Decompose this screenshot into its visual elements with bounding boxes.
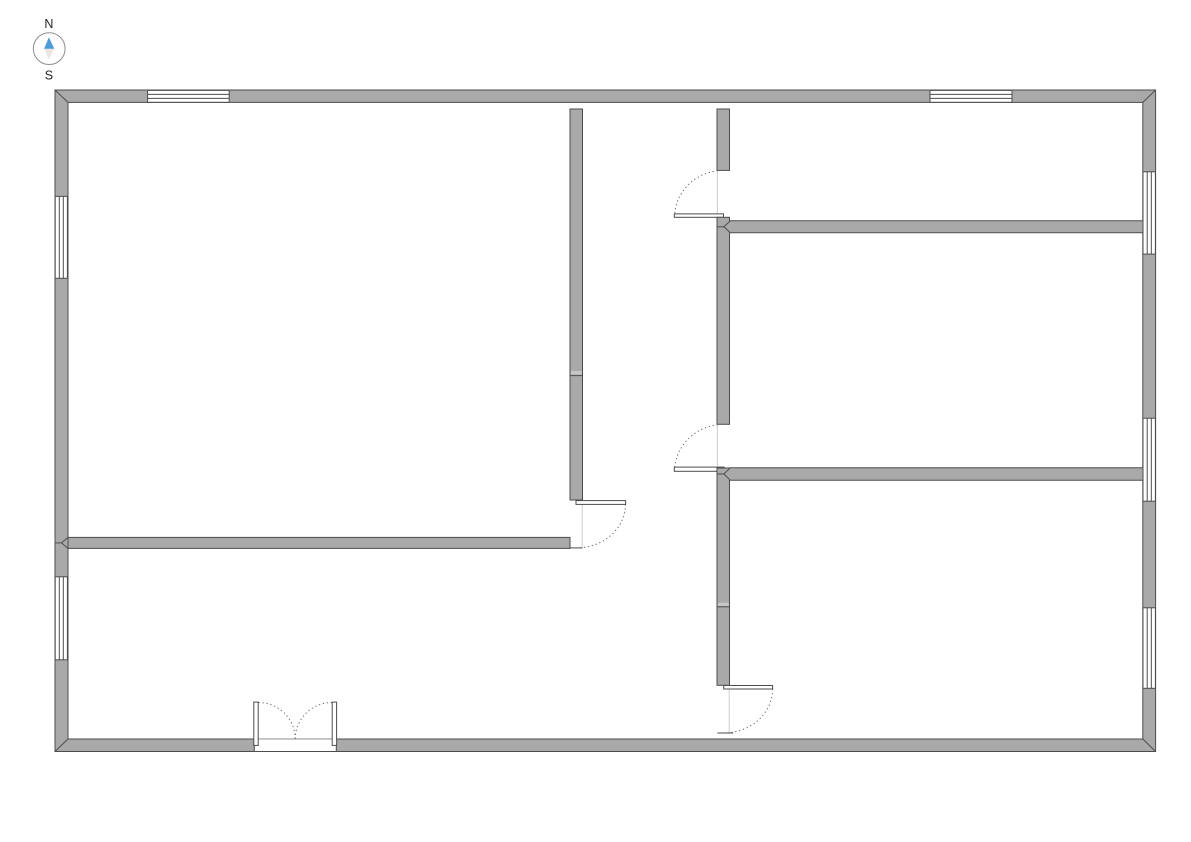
svg-text:S: S <box>45 69 53 83</box>
svg-text:N: N <box>44 17 53 31</box>
